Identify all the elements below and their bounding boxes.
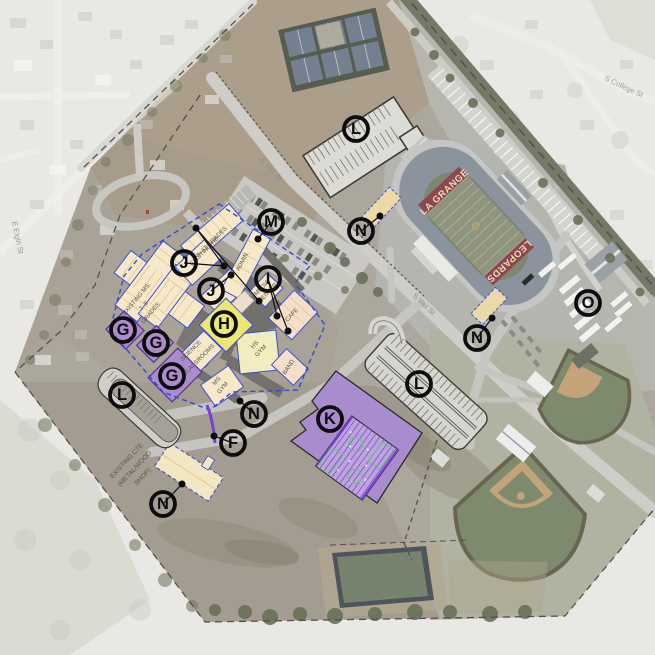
svg-text:J: J [206, 282, 215, 300]
svg-text:L: L [117, 386, 127, 404]
svg-text:H: H [218, 315, 230, 333]
svg-text:F: F [228, 434, 238, 452]
svg-text:L: L [351, 120, 361, 138]
svg-text:J: J [179, 254, 188, 272]
svg-text:G: G [166, 367, 179, 385]
svg-text:G: G [150, 334, 163, 352]
svg-text:N: N [471, 329, 483, 347]
svg-text:L: L [414, 375, 424, 393]
svg-text:K: K [324, 410, 336, 428]
svg-text:O: O [582, 294, 595, 312]
svg-text:N: N [355, 222, 367, 240]
svg-text:M: M [264, 213, 278, 231]
svg-text:N: N [157, 495, 169, 513]
svg-text:G: G [117, 321, 130, 339]
svg-text:I: I [266, 270, 271, 288]
svg-text:N: N [248, 405, 260, 423]
